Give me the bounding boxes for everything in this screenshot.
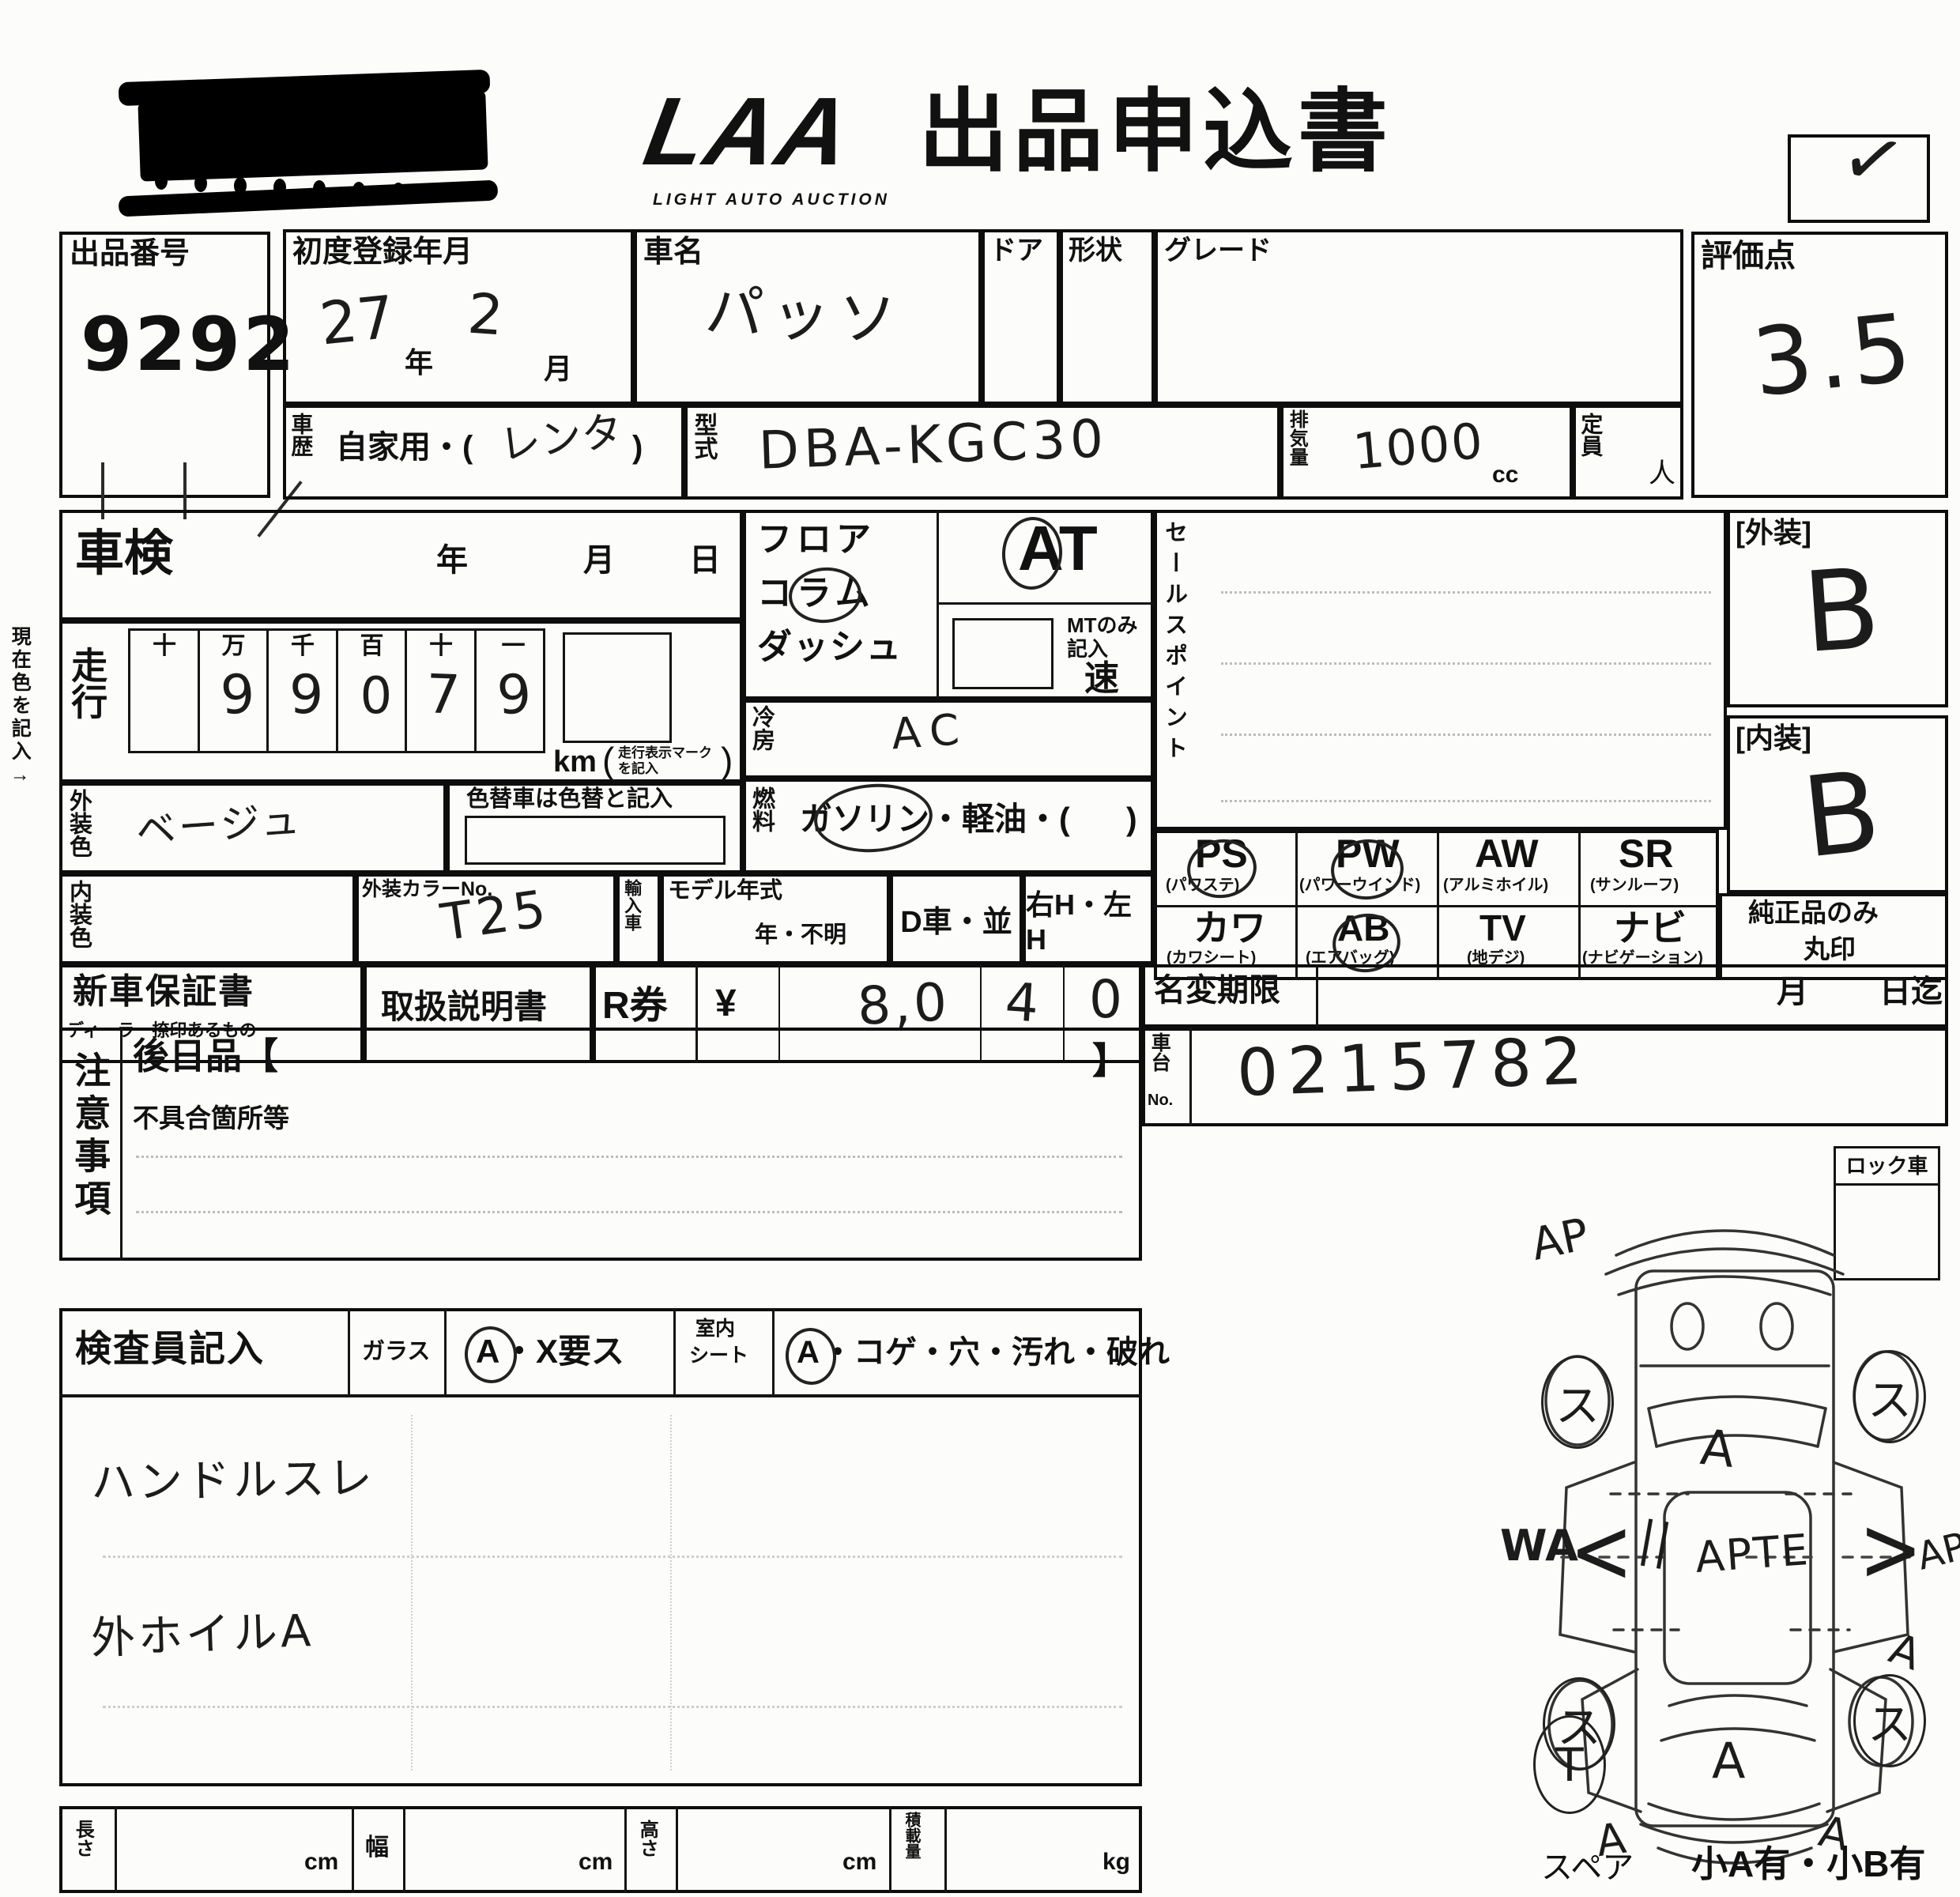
model-code-value: DBA-KGC30 [758,411,1109,478]
car-name-value: パッソ [703,281,906,353]
model-year-value: 年・不明 [755,923,846,947]
digit-header: 千 [291,634,315,659]
model-year-label: モデル年式 [668,879,782,903]
steering-box: 右H・左H [1023,873,1154,964]
genuine-parts-note1: 純正品のみ [1748,899,1879,927]
equipment-col-divider [1295,830,1298,980]
fuel-rest: ・軽油・( [929,802,1070,836]
fuel-label: 燃料 [749,786,773,866]
name-change-month-unit: 月 [1777,975,1808,1009]
mileage-label: 走行 [68,647,106,765]
wheel-mark-text: ス [1868,1689,1912,1753]
r-ticket-currency: ¥ [715,984,737,1024]
rating-value: 3.5 [1748,299,1920,413]
mileage-blank-box [563,632,672,743]
digit-header: 百 [360,634,384,659]
inspector-line [103,1556,1122,1558]
digit-header: 十 [429,634,453,659]
margin-current-color-note: 現在色を記入→ [9,626,30,887]
model-code-label: 型式 [691,413,716,492]
sales-point-line [1221,591,1711,594]
width-label: 幅 [365,1835,389,1861]
page-title: 出品申込書 [918,85,1393,180]
sales-point-label: セールスポイント [1162,520,1185,824]
glass-label: ガラス [362,1340,430,1363]
dim-div [403,1806,405,1893]
displacement-value: 1000 [1351,415,1486,477]
digit-value: 9 [495,666,533,725]
diagram-a-center-rear: A [1712,1735,1745,1786]
shift-line1: フロア [757,522,876,558]
equip-aw-name: (アルミホイル) [1443,877,1548,894]
equip-aw-code: AW [1475,833,1539,875]
displacement-unit: cc [1492,462,1518,488]
spare-tire-mark-text: T [1555,1738,1583,1792]
mt-note-line1: MTのみ [1067,615,1138,636]
shaken-month-unit: 月 [583,544,615,577]
spare-label: スペア [1541,1851,1634,1884]
notes-line [136,1156,1122,1158]
shape-label: 形状 [1069,237,1122,266]
seat-label-line1: 室内 [695,1318,735,1339]
mileage-unit-note-open: ( [602,741,614,779]
glass-option-rest: ・X要ス [503,1334,624,1369]
wheel-mark-text: ス [1868,1365,1912,1429]
interior-grade-value: B [1798,753,1886,877]
capacity-unit: 人 [1649,460,1675,488]
mileage-unit-note-close: ) [721,741,733,779]
inspector-col-line [411,1415,413,1771]
grade-label: グレード [1164,237,1272,266]
r-ticket-value-2: 4 [1004,975,1041,1031]
height-unit: cm [842,1850,876,1875]
equip-kawa-code: カワ [1193,909,1266,947]
sales-point-line [1221,800,1711,802]
door-label: ドア [989,237,1043,266]
car-name-label: 車名 [643,237,703,269]
color-change-blank-box [465,816,726,865]
digit-header: 一 [502,634,526,659]
sales-point-line [1221,734,1711,736]
interior-color-box [59,873,356,964]
shift-line3: ダッシュ [757,629,903,666]
load-label: 積載量 [903,1812,919,1889]
manual-label: 取扱説明書 [381,990,547,1024]
history-printed-close: ) [632,431,643,464]
exterior-grade-value: B [1800,551,1883,672]
inspector-note-1: ハンドルスレ [91,1456,376,1507]
notes-bracket-close: 】 [1092,1042,1129,1080]
capacity-label: 定員 [1579,413,1602,492]
interior-grade-label: [内装] [1736,723,1811,753]
mileage-unit-note-line1: 走行表示マーク [618,746,712,760]
color-change-note: 色替車は色替と記入 [466,787,673,811]
first-registration-month-value: 2 [465,285,505,345]
aircon-label: 冷房 [749,705,773,775]
history-label: 車歴 [289,413,312,492]
genuine-parts-note2: 丸印 [1804,936,1856,964]
spare-tire-mark: T [1533,1715,1606,1814]
equip-tv-code: TV [1479,909,1526,947]
digit-value: 7 [425,666,462,724]
speed-unit: 速 [1084,661,1119,697]
dealer-car-box: D車・並 [890,873,1023,964]
interior-color-label: 内装色 [66,880,90,959]
aircon-value: AC [890,707,970,757]
r-ticket-value-3: 0 [1089,972,1122,1027]
sales-point-box [1154,510,1727,830]
lock-car-label: ロック車 [1845,1150,1928,1179]
diagram-apte: APTE [1694,1528,1811,1581]
dim-div [944,1806,947,1893]
rating-label: 評価点 [1701,239,1796,273]
import-car-label: 輸入車 [623,879,641,960]
height-label: 高さ [637,1820,657,1883]
inspector-line [103,1706,1122,1708]
exterior-grade-label: [外装] [1736,518,1811,548]
history-printed: 自家用・( [336,431,473,464]
r-ticket-label: R券 [602,986,668,1026]
seat-label-line2: シート [689,1345,748,1366]
diagram-corner-note: 小A有・小B有 [1691,1845,1925,1883]
month-unit: 月 [544,354,572,384]
diagram-ap-right: AP [1913,1526,1960,1577]
displacement-label: 排気量 [1287,409,1306,495]
mt-note-line2: 記入 [1067,639,1108,660]
exterior-color-label: 外装色 [66,789,90,868]
wheel-mark-text: ス [1555,1371,1600,1435]
lot-number-value: 9292 [81,307,297,385]
laa-logo: LAA [638,81,858,182]
dealer-car-label: D車・並 [900,897,1012,941]
wheel-mark-rear-right: ス [1853,1674,1926,1767]
diagram-wa: WA [1500,1524,1578,1569]
r-ticket-value-1: 8,0 [856,975,951,1034]
diagram-a-hood: A [1698,1421,1737,1476]
steering-label: 右H・左H [1026,882,1151,956]
digit-value: 9 [219,666,256,725]
equip-sr-code: SR [1619,833,1673,875]
mileage-unit-note-line2: を記入 [618,762,658,776]
exterior-color-value: ベージュ [134,799,304,852]
notes-defect-label: 不具合箇所等 [133,1105,289,1133]
equip-sr-name: (サンルーフ) [1590,877,1679,894]
first-registration-year-value: 27 [317,287,398,356]
dim-div [889,1806,891,1893]
equip-navi-code: ナビ [1614,909,1687,947]
auction-sheet: LAA LIGHT AUTO AUCTION 出品申込書 ✓ 出品番号 9292… [0,0,1960,1897]
inspector-label: 検査員記入 [75,1329,265,1367]
name-change-divider [1316,964,1318,1028]
mileage-unit: km [553,747,597,779]
digit-value: 0 [360,670,393,723]
mileage-digit-grid: 十 万 9 千 9 百 0 十 7 一 9 [128,628,545,753]
notes-label: 注意事項 [71,1051,109,1241]
chassis-value: 0215782 [1236,1028,1593,1108]
shaken-year-unit: 年 [436,544,468,577]
diagram-ap-top: AP [1528,1212,1593,1269]
digit-value: 9 [289,667,323,723]
first-registration-label: 初度登録年月 [292,237,473,269]
dim-div [676,1806,678,1893]
dim-div [624,1806,627,1893]
diagram-arrow-right: > [1859,1502,1922,1597]
lot-number-label: 出品番号 [70,239,190,270]
seat-option-rest: ・コゲ・穴・汚れ・破れ [822,1336,1170,1369]
year-unit: 年 [405,348,433,378]
dim-div [352,1806,354,1893]
laa-logo-subtitle: LIGHT AUTO AUCTION [653,191,890,209]
length-label: 長さ [73,1820,92,1883]
wheel-mark-front-right: ス [1853,1350,1926,1443]
inspector-col-line [670,1415,672,1771]
inspector-note-2: 外ホイルA [90,1608,315,1663]
notes-label-divider [120,1028,122,1261]
wheel-mark-front-left: ス [1541,1356,1614,1449]
equipment-col-divider [1437,830,1439,980]
chassis-label-no: No. [1148,1092,1173,1109]
chassis-divider [1189,1028,1192,1126]
length-unit: cm [304,1850,338,1875]
shaken-day-unit: 日 [689,544,721,577]
digit-header: 十 [153,634,176,659]
fuel-close: ) [1126,802,1137,836]
digit-header: 万 [222,634,246,659]
load-unit: kg [1102,1850,1130,1875]
sales-point-line [1221,662,1711,665]
width-unit: cm [579,1850,612,1875]
warranty-label: 新車保証書 [73,974,254,1010]
name-change-until: 日迄 [1879,975,1943,1009]
name-change-label: 名変期限 [1154,974,1280,1007]
mt-blank-box [952,618,1053,689]
equipment-col-divider [1578,830,1581,980]
shaken-label: 車検 [75,528,173,579]
notes-later-item-label: 後日品【 [133,1037,278,1075]
chassis-label: 車台 [1149,1032,1170,1081]
dim-div [115,1806,117,1893]
diagram-arrow-left: < [1570,1503,1633,1599]
notes-line [136,1211,1122,1213]
